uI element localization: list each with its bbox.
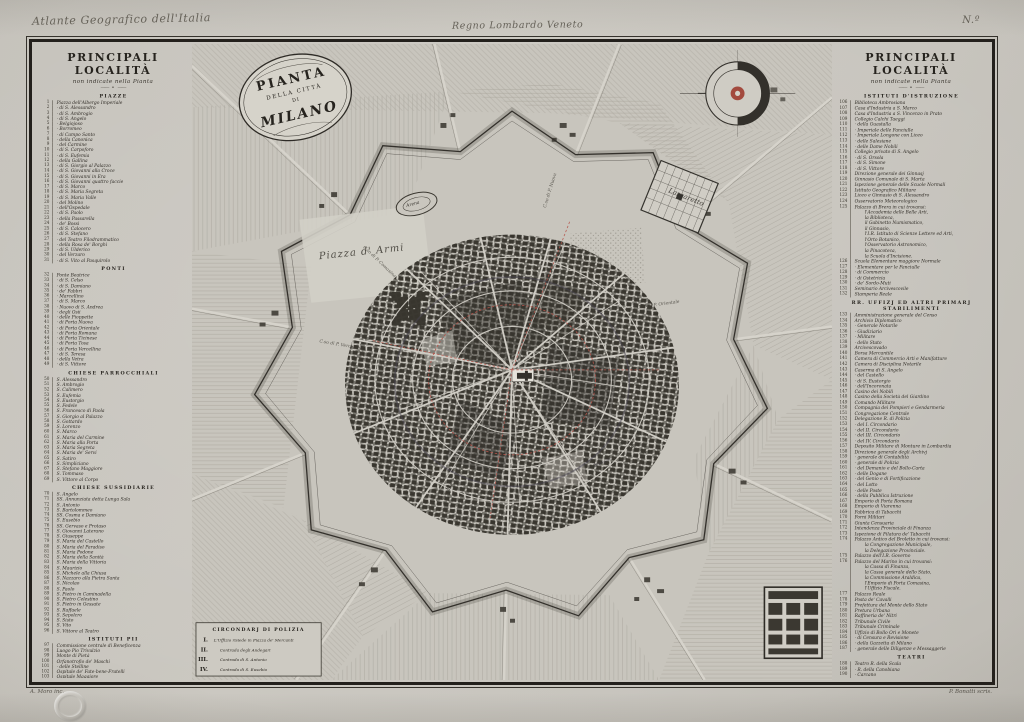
list-item: 187 · generale delle Diligenze e Messagg… <box>835 646 988 651</box>
item-number: 49 <box>37 362 52 367</box>
panel-body: ISTITUTI D'ISTRUZIONE 106 Biblioteca Amb… <box>835 90 988 678</box>
svg-text:L'Uffizio risiede in Piazza de: L'Uffizio risiede in Piazza de' Mercanti <box>213 637 294 642</box>
locality-section: ISTITUTI PII 97 Commissione centrale di … <box>37 636 190 678</box>
item-label: Palazzo di Brera in cui trovansi:l'Accad… <box>850 204 988 259</box>
item-number: 132 <box>835 292 850 297</box>
item-label: S. Vittore al Corpo <box>52 477 190 482</box>
item-number: 125 <box>835 204 850 259</box>
duomo <box>512 369 534 382</box>
list-item: 69 S. Vittore al Corpo <box>37 477 190 482</box>
svg-text:III.: III. <box>198 657 208 663</box>
list-item: 96 S. Vittore al Teatro <box>37 628 190 633</box>
item-number: 187 <box>835 646 850 651</box>
map-canvas: Lazzaretto Piazza d' Armi Arena Naviglio… <box>192 44 832 680</box>
section-heading: PONTI <box>37 266 190 272</box>
item-number: 103 <box>37 675 52 678</box>
section-heading: CHIESE SUSSIDIARIE <box>37 484 190 490</box>
list-item: 125 Palazzo di Brera in cui trovansi:l'A… <box>835 204 988 259</box>
locality-section: PIAZZE 1 Piazza dell'Albergo Imperiale <box>37 93 190 263</box>
svg-text:Contrada degli Andegari: Contrada degli Andegari <box>220 647 271 652</box>
item-label: · di S. Vittore <box>52 362 190 367</box>
panel-body: PIAZZE 1 Piazza dell'Albergo Imperiale <box>37 90 190 678</box>
engraver-credit-right: P. Bonatti scris. <box>949 689 992 695</box>
section-heading: TEATRI <box>835 654 988 660</box>
police-legend: CIRCONDARJ DI POLIZIA I. II. III. IV. L'… <box>196 623 321 676</box>
list-item: 174 Palazzo Antico del Broletto in cui t… <box>835 537 988 553</box>
panel-title: PRINCIPALI LOCALITÀ <box>34 51 192 77</box>
section-heading: PIAZZE <box>37 93 190 99</box>
locality-section: PONTI 32 Ponte Beatrice 33 <box>37 266 190 368</box>
series-annotation: Atlante Geografico dell'Italia <box>32 11 211 28</box>
item-label: · di S. Vito al Pasquirolo <box>52 258 190 263</box>
svg-text:I.: I. <box>203 637 208 643</box>
section-heading: ISTITUTI D'ISTRUZIONE <box>835 93 988 99</box>
list-item: 31 · di S. Vito al Pasquirolo <box>37 258 190 263</box>
svg-text:II.: II. <box>201 647 208 653</box>
building-plan-inset <box>764 587 822 658</box>
section-heading: RR. UFFIZJ ED ALTRI PRIMARJ STABILIMENTI <box>835 300 988 312</box>
list-item: 176 Palazzo del Marino in cui trovansi:l… <box>835 559 988 592</box>
item-number: 176 <box>835 559 850 592</box>
locality-section: TEATRI 188 Teatro R. della Scala 189 <box>835 654 988 678</box>
panel-title: PRINCIPALI LOCALITÀ <box>832 51 990 77</box>
item-label: Palazzo Antico del Broletto in cui trova… <box>850 537 988 553</box>
plate-number-annotation: N.º <box>962 15 980 26</box>
item-number: 31 <box>37 258 52 263</box>
milan-city-map: Lazzaretto Piazza d' Armi Arena Naviglio… <box>192 44 832 680</box>
right-locality-panel: PRINCIPALI LOCALITÀ non indicate nella P… <box>831 44 990 680</box>
list-item: 103 Ospitale Maggiore <box>37 675 190 678</box>
item-number: 174 <box>835 537 850 553</box>
item-label: Stamperia Reale <box>850 292 988 297</box>
locality-section: CHIESE PARROCCHIALI 50 S. Alessandro 51 <box>37 370 190 483</box>
map-sheet: Atlante Geografico dell'Italia Regno Lom… <box>0 0 1024 722</box>
item-number: 96 <box>37 628 52 633</box>
svg-text:CIRCONDARJ DI POLIZIA: CIRCONDARJ DI POLIZIA <box>212 627 304 633</box>
locality-section: RR. UFFIZJ ED ALTRI PRIMARJ STABILIMENTI… <box>835 300 988 652</box>
blind-stamp <box>54 691 86 721</box>
svg-text:IV.: IV. <box>200 667 208 673</box>
locality-list: PIAZZE 1 Piazza dell'Albergo Imperiale <box>37 93 190 678</box>
left-locality-panel: PRINCIPALI LOCALITÀ non indicate nella P… <box>34 44 193 680</box>
item-label: S. Vittore al Teatro <box>52 628 190 633</box>
region-annotation: Regno Lombardo Veneto <box>452 19 583 31</box>
item-label: Palazzo del Marino in cui trovansi:la Ca… <box>850 559 988 592</box>
section-heading: CHIESE PARROCCHIALI <box>37 370 190 376</box>
list-item: 49 · di S. Vittore <box>37 362 190 367</box>
list-item: 132 Stamperia Reale <box>835 292 988 297</box>
locality-section: ISTITUTI D'ISTRUZIONE 106 Biblioteca Amb… <box>835 93 988 297</box>
item-number: 69 <box>37 477 52 482</box>
locality-section: CHIESE SUSSIDIARIE 70 S. Angelo 71 <box>37 484 190 633</box>
item-label: · generale delle Diligenze e Messaggerie <box>850 646 988 651</box>
svg-text:Contrada di S. Eusebio: Contrada di S. Eusebio <box>220 667 268 672</box>
item-label: Ospitale Maggiore <box>52 675 190 678</box>
section-heading: ISTITUTI PII <box>37 636 190 642</box>
svg-text:Contrada di S. Antonio: Contrada di S. Antonio <box>220 657 267 662</box>
locality-list: ISTITUTI D'ISTRUZIONE 106 Biblioteca Amb… <box>835 93 988 678</box>
